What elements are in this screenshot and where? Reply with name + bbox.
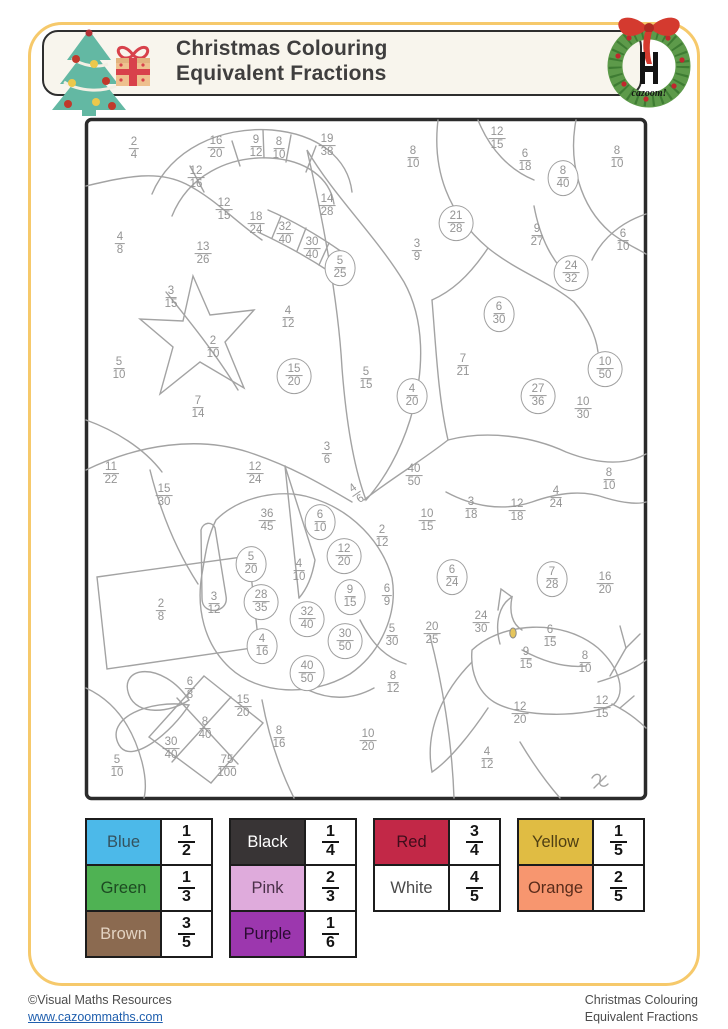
fraction-label: 615 bbox=[544, 624, 557, 650]
fraction-label: 810 bbox=[611, 145, 624, 171]
fraction-label: 1224 bbox=[247, 461, 264, 487]
fraction-label: 714 bbox=[192, 395, 205, 421]
fraction-label: 721 bbox=[457, 353, 470, 379]
fraction-label: 1620 bbox=[208, 135, 225, 161]
fraction-label: 618 bbox=[519, 148, 532, 174]
fraction-label: 24 bbox=[129, 136, 139, 162]
fraction-label: 1520 bbox=[235, 694, 252, 720]
fraction-label: 1020 bbox=[360, 728, 377, 754]
fraction-label: 1220 bbox=[327, 538, 362, 574]
fraction-label: 412 bbox=[282, 305, 295, 331]
fraction-label: 1620 bbox=[597, 571, 614, 597]
fraction-label: 915 bbox=[520, 646, 533, 672]
fraction-label: 610 bbox=[617, 228, 630, 254]
fraction-label: 28 bbox=[156, 598, 166, 624]
fraction-label: 2430 bbox=[473, 610, 490, 636]
fraction-label: 816 bbox=[273, 725, 286, 751]
fraction-label: 810 bbox=[273, 136, 286, 162]
fraction-label: 3240 bbox=[277, 221, 294, 247]
fraction-label: 410 bbox=[293, 558, 306, 584]
fraction-label: 520 bbox=[236, 546, 267, 582]
fraction-label: 515 bbox=[360, 366, 373, 392]
fraction-label: 840 bbox=[199, 716, 212, 742]
fraction-label: 416 bbox=[247, 628, 278, 664]
fraction-label: 1530 bbox=[156, 483, 173, 509]
fraction-label: 630 bbox=[484, 296, 515, 332]
fraction-label: 840 bbox=[548, 160, 579, 196]
fraction-label: 624 bbox=[437, 559, 468, 595]
fraction-label: 510 bbox=[113, 356, 126, 382]
fraction-label: 420 bbox=[397, 378, 428, 414]
fraction-label: 48 bbox=[115, 231, 125, 257]
fraction-label: 1220 bbox=[512, 701, 529, 727]
fraction-label: 36 bbox=[322, 441, 332, 467]
fraction-label: 1215 bbox=[216, 197, 233, 223]
fraction-label: 1050 bbox=[588, 351, 623, 387]
fraction-label: 3645 bbox=[259, 508, 276, 534]
fraction-label: 1520 bbox=[277, 358, 312, 394]
fraction-label: 4050 bbox=[290, 655, 325, 691]
fraction-label: 424 bbox=[550, 485, 563, 511]
worksheet-page: Christmas Colouring Equivalent Fractions… bbox=[0, 0, 728, 1029]
fraction-label: 3050 bbox=[328, 623, 363, 659]
fraction-label: 2432 bbox=[554, 255, 589, 291]
fraction-label: 1218 bbox=[509, 498, 526, 524]
fraction-label: 927 bbox=[531, 223, 544, 249]
fraction-label: 2128 bbox=[439, 205, 474, 241]
fraction-label: 312 bbox=[208, 591, 221, 617]
fraction-label: 412 bbox=[481, 746, 494, 772]
fraction-label: 1215 bbox=[489, 126, 506, 152]
fraction-label: 810 bbox=[407, 145, 420, 171]
fraction-label: 610 bbox=[305, 504, 336, 540]
fraction-label: 1824 bbox=[248, 211, 265, 237]
fraction-label: 1215 bbox=[594, 695, 611, 721]
fraction-label: 75100 bbox=[217, 754, 236, 780]
fraction-label: 69 bbox=[382, 583, 392, 609]
fraction-label: 530 bbox=[386, 623, 399, 649]
fraction-label: 3240 bbox=[290, 601, 325, 637]
fraction-label: 2025 bbox=[424, 621, 441, 647]
fraction-label: 510 bbox=[111, 754, 124, 780]
fraction-label: 68 bbox=[185, 676, 195, 702]
fraction-label: 46 bbox=[345, 480, 368, 507]
fraction-label: 1938 bbox=[319, 133, 336, 159]
fractions-layer: 2416209128101938810121561884081012161215… bbox=[0, 0, 728, 1029]
fraction-label: 525 bbox=[325, 250, 356, 286]
fraction-label: 1015 bbox=[419, 508, 436, 534]
fraction-label: 212 bbox=[376, 524, 389, 550]
fraction-label: 4050 bbox=[406, 463, 423, 489]
fraction-label: 39 bbox=[412, 238, 422, 264]
fraction-label: 810 bbox=[603, 467, 616, 493]
fraction-label: 1030 bbox=[575, 396, 592, 422]
fraction-label: 915 bbox=[335, 579, 366, 615]
fraction-label: 728 bbox=[537, 561, 568, 597]
fraction-label: 210 bbox=[207, 335, 220, 361]
fraction-label: 812 bbox=[387, 670, 400, 696]
fraction-label: 1122 bbox=[103, 461, 119, 487]
fraction-label: 318 bbox=[465, 496, 478, 522]
fraction-label: 3040 bbox=[304, 236, 321, 262]
fraction-label: 2736 bbox=[521, 378, 556, 414]
fraction-label: 1326 bbox=[195, 241, 212, 267]
fraction-label: 1428 bbox=[319, 193, 336, 219]
fraction-label: 3040 bbox=[163, 736, 180, 762]
fraction-label: 912 bbox=[250, 134, 263, 160]
fraction-label: 2835 bbox=[244, 584, 279, 620]
fraction-label: 315 bbox=[165, 285, 178, 311]
fraction-label: 1216 bbox=[188, 165, 205, 191]
fraction-label: 810 bbox=[579, 650, 592, 676]
